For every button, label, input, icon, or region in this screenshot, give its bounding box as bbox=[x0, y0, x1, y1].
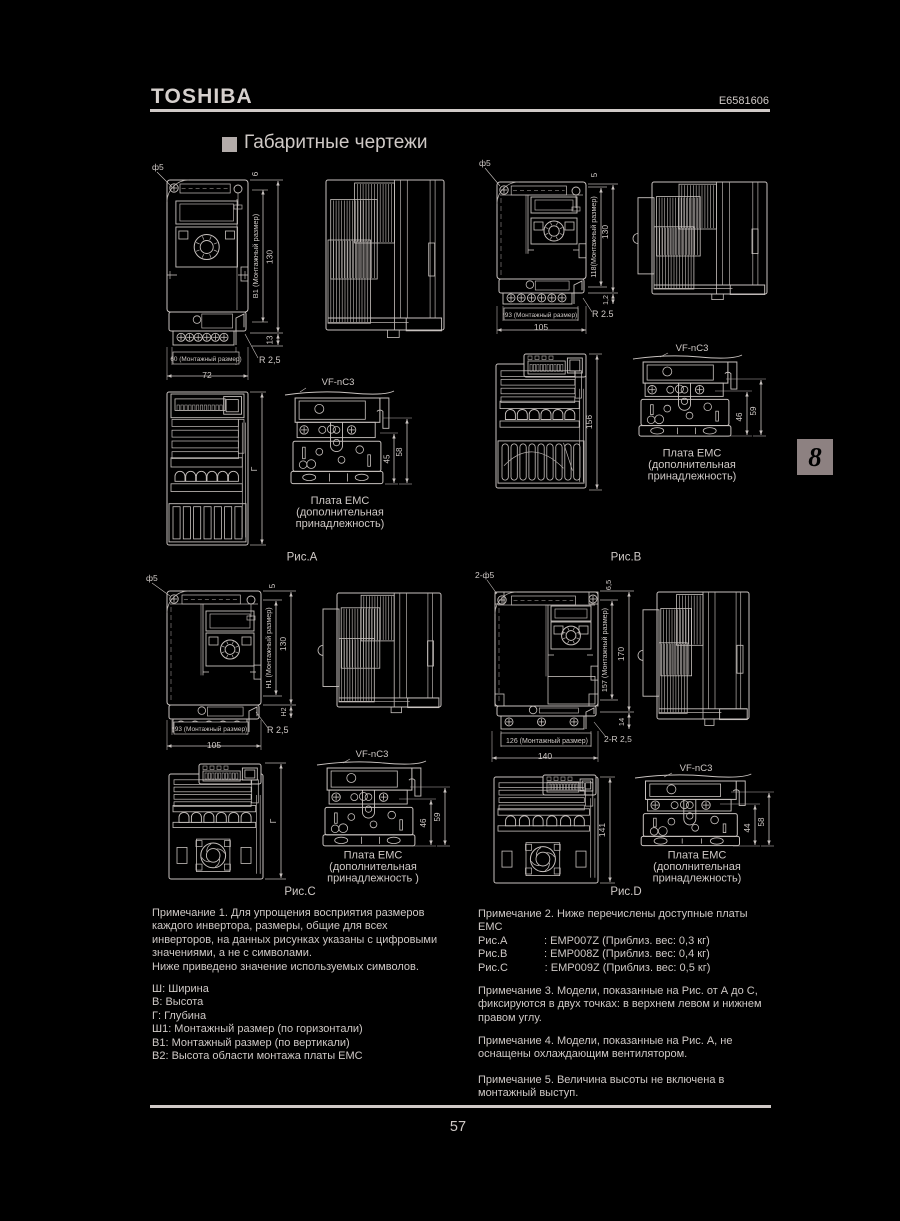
svg-text:6,5: 6,5 bbox=[604, 580, 613, 590]
svg-text:ф5: ф5 bbox=[152, 162, 164, 172]
svg-text:59: 59 bbox=[433, 812, 442, 821]
svg-text:Плата ЕМС: Плата ЕМС bbox=[311, 495, 370, 507]
svg-text:93 (Монтажный размер): 93 (Монтажный размер) bbox=[505, 311, 577, 319]
svg-text:156: 156 bbox=[584, 415, 594, 429]
svg-text:Рис.D: Рис.D bbox=[610, 886, 641, 898]
svg-text:Плата ЕМС: Плата ЕМС bbox=[344, 850, 403, 862]
svg-text:(дополнительная: (дополнительная bbox=[296, 507, 384, 519]
svg-text:(дополнительная: (дополнительная bbox=[648, 459, 736, 471]
svg-text:Рис.В: Рис.В bbox=[611, 552, 642, 564]
svg-text:R 2,5: R 2,5 bbox=[267, 725, 289, 735]
svg-text:59: 59 bbox=[749, 406, 758, 415]
svg-text:Г: Г bbox=[249, 466, 259, 471]
svg-text:140: 140 bbox=[538, 751, 552, 761]
svg-text:157 (Монтажный размер): 157 (Монтажный размер) bbox=[600, 608, 609, 692]
svg-text:44: 44 bbox=[743, 823, 752, 832]
svg-text:2-ф5: 2-ф5 bbox=[475, 570, 495, 580]
svg-text:R 2,5: R 2,5 bbox=[259, 355, 281, 365]
svg-text:R 2.5: R 2.5 bbox=[592, 309, 614, 319]
svg-text:170: 170 bbox=[616, 647, 626, 661]
svg-text:Н1 (Монтажный размер): Н1 (Монтажный размер) bbox=[264, 607, 273, 688]
svg-text:130: 130 bbox=[278, 637, 288, 651]
svg-text:ф5: ф5 bbox=[146, 573, 158, 583]
svg-text:6: 6 bbox=[251, 171, 260, 176]
svg-text:58: 58 bbox=[395, 447, 404, 456]
svg-text:126 (Монтажный размер): 126 (Монтажный размер) bbox=[506, 737, 588, 745]
svg-text:58: 58 bbox=[757, 817, 766, 826]
svg-text:Рис.С: Рис.С bbox=[284, 886, 315, 898]
svg-text:В1 (Монтажный размер): В1 (Монтажный размер) bbox=[251, 213, 260, 298]
svg-text:14: 14 bbox=[617, 718, 626, 726]
svg-text:Плата ЕМС: Плата ЕМС bbox=[668, 850, 727, 862]
svg-text:130: 130 bbox=[265, 250, 275, 264]
svg-text:ф5: ф5 bbox=[479, 158, 491, 168]
svg-text:принадлежность): принадлежность) bbox=[296, 518, 385, 530]
svg-text:Г: Г bbox=[268, 818, 278, 823]
svg-text:принадлежность ): принадлежность ) bbox=[327, 873, 419, 885]
svg-text:45: 45 bbox=[383, 454, 392, 463]
svg-text:46: 46 bbox=[735, 412, 744, 421]
svg-text:72: 72 bbox=[202, 370, 212, 380]
svg-text:118(Монтажный размер): 118(Монтажный размер) bbox=[589, 196, 598, 278]
svg-text:2-R 2,5: 2-R 2,5 bbox=[604, 734, 632, 744]
svg-text:VF-nC3: VF-nC3 bbox=[356, 749, 389, 760]
svg-text:46: 46 bbox=[419, 818, 428, 827]
svg-text:VF-nC3: VF-nC3 bbox=[676, 343, 709, 354]
svg-text:Рис.А: Рис.А bbox=[287, 552, 318, 564]
svg-text:5: 5 bbox=[590, 172, 599, 177]
svg-text:(дополнительная: (дополнительная bbox=[329, 861, 417, 873]
svg-text:105: 105 bbox=[534, 322, 548, 332]
svg-text:Плата ЕМС: Плата ЕМС bbox=[663, 448, 722, 460]
svg-text:VF-nC3: VF-nC3 bbox=[680, 763, 713, 774]
svg-text:Н2: Н2 bbox=[281, 707, 288, 716]
svg-text:принадлежность): принадлежность) bbox=[648, 471, 737, 483]
svg-text:VF-nC3: VF-nC3 bbox=[322, 377, 355, 388]
svg-text:93 (Монтажный размер): 93 (Монтажный размер) bbox=[175, 725, 247, 733]
svg-text:(дополнительная: (дополнительная bbox=[653, 861, 741, 873]
svg-text:5: 5 bbox=[268, 583, 277, 588]
svg-text:141: 141 bbox=[597, 823, 607, 837]
svg-text:105: 105 bbox=[207, 740, 221, 750]
svg-text:принадлежность): принадлежность) bbox=[653, 873, 742, 885]
svg-text:1,2: 1,2 bbox=[603, 295, 610, 305]
svg-text:130: 130 bbox=[600, 225, 610, 239]
svg-text:60 (Монтажный размер): 60 (Монтажный размер) bbox=[170, 355, 241, 363]
svg-text:13: 13 bbox=[266, 335, 275, 344]
